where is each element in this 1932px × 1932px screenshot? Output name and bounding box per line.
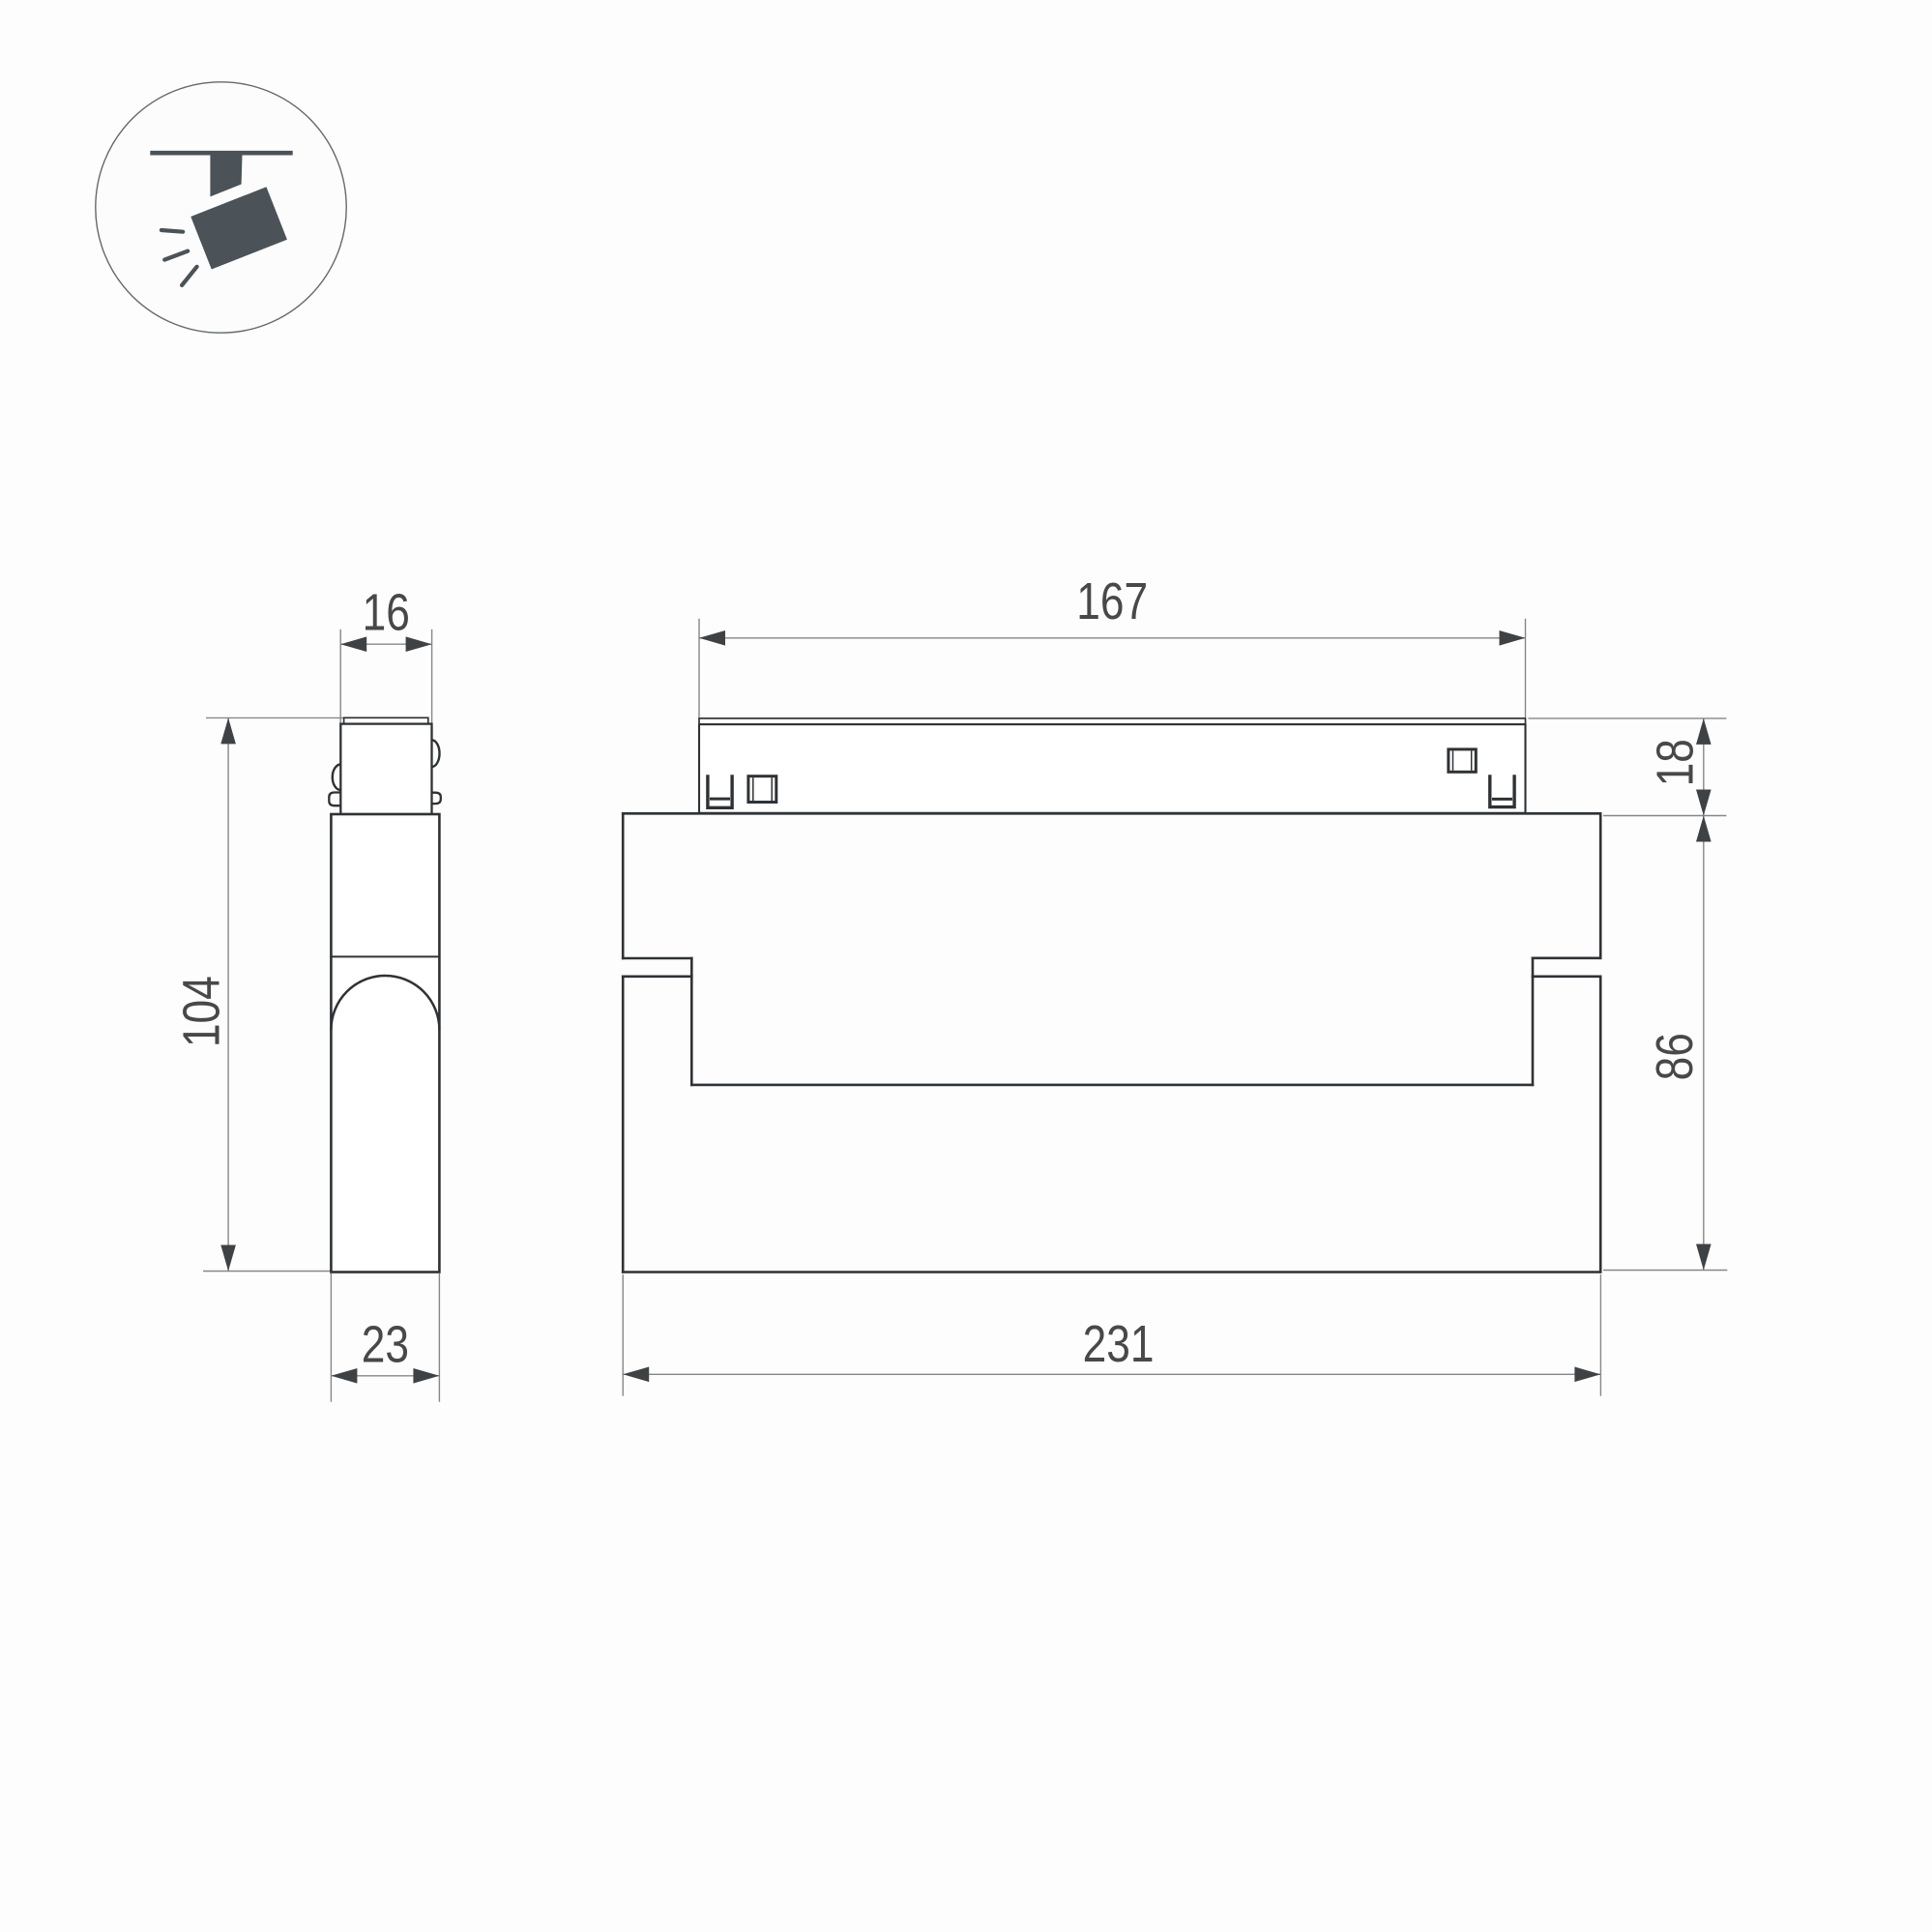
svg-text:231: 231 — [1083, 1315, 1155, 1373]
svg-text:16: 16 — [363, 583, 410, 641]
svg-text:167: 167 — [1076, 572, 1148, 630]
svg-text:104: 104 — [172, 976, 230, 1047]
svg-text:18: 18 — [1646, 739, 1704, 786]
svg-text:86: 86 — [1646, 1033, 1704, 1080]
svg-text:23: 23 — [362, 1315, 409, 1373]
